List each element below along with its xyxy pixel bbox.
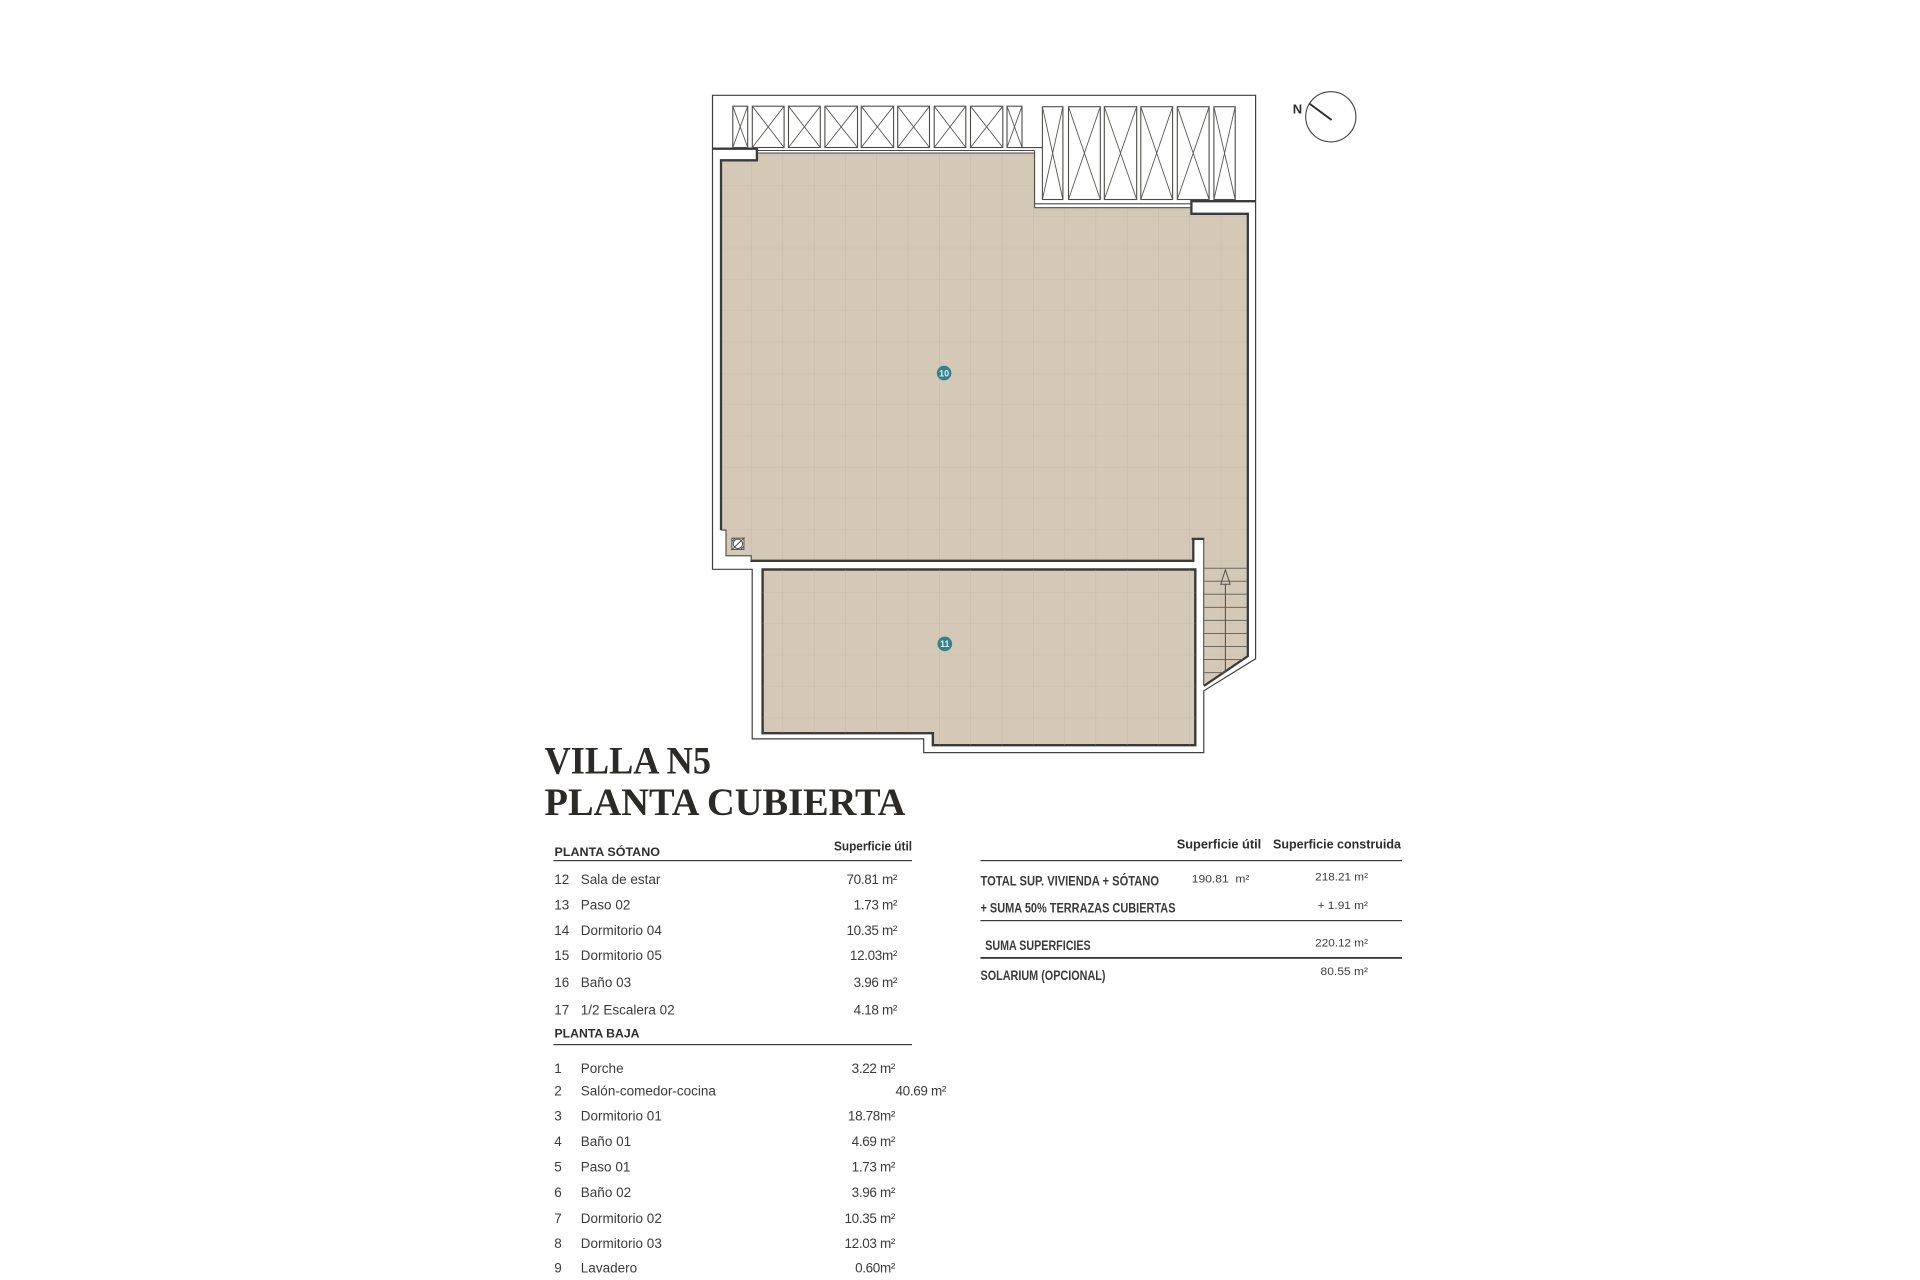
svg-text:12.03 m²: 12.03 m² (845, 1236, 896, 1251)
svg-text:11: 11 (940, 639, 950, 649)
svg-text:15: 15 (554, 948, 569, 963)
svg-text:+ SUMA 50% TERRAZAS CUBIERTAS: + SUMA 50% TERRAZAS CUBIERTAS (981, 901, 1176, 916)
svg-text:Dormitorio 04: Dormitorio 04 (581, 923, 663, 938)
svg-text:1.73 m²: 1.73 m² (852, 1159, 896, 1174)
svg-text:70.81 m²: 70.81 m² (847, 872, 898, 887)
svg-text:Paso 01: Paso 01 (581, 1159, 631, 1174)
svg-text:5: 5 (554, 1159, 562, 1174)
svg-text:SOLARIUM (OPCIONAL): SOLARIUM (OPCIONAL) (981, 968, 1106, 983)
svg-text:Sala de estar: Sala de estar (581, 872, 661, 887)
svg-text:14: 14 (554, 923, 570, 938)
svg-text:4: 4 (554, 1134, 562, 1149)
svg-text:218.21 m²: 218.21 m² (1315, 872, 1368, 884)
svg-text:Baño 02: Baño 02 (581, 1185, 631, 1200)
svg-text:1.73 m²: 1.73 m² (854, 897, 898, 912)
svg-text:+ 1.91 m²: + 1.91 m² (1318, 900, 1369, 912)
svg-text:VILLA N5: VILLA N5 (545, 739, 712, 782)
svg-text:6: 6 (554, 1185, 562, 1200)
svg-text:4.18 m²: 4.18 m² (854, 1003, 898, 1018)
svg-text:Porche: Porche (581, 1061, 624, 1076)
svg-text:9: 9 (554, 1260, 562, 1275)
svg-text:Dormitorio 02: Dormitorio 02 (581, 1211, 662, 1226)
svg-text:Dormitorio 03: Dormitorio 03 (581, 1236, 662, 1251)
svg-text:3.22 m²: 3.22 m² (852, 1061, 896, 1076)
svg-text:190.81 m²: 190.81 m² (1192, 874, 1250, 886)
svg-text:17: 17 (554, 1003, 569, 1018)
svg-text:13: 13 (554, 897, 569, 912)
svg-text:TOTAL SUP. VIVIENDA + SÓTANO: TOTAL SUP. VIVIENDA + SÓTANO (981, 874, 1160, 889)
svg-text:10.35 m²: 10.35 m² (845, 1211, 896, 1226)
svg-text:1: 1 (554, 1061, 562, 1076)
svg-text:40.69 m²: 40.69 m² (896, 1083, 947, 1098)
svg-text:Dormitorio 05: Dormitorio 05 (581, 948, 662, 963)
svg-text:SUMA SUPERFICIES: SUMA SUPERFICIES (985, 938, 1090, 953)
svg-text:2: 2 (554, 1083, 562, 1098)
svg-text:1/2 Escalera 02: 1/2 Escalera 02 (581, 1003, 675, 1018)
svg-text:80.55 m²: 80.55 m² (1321, 966, 1369, 978)
svg-text:7: 7 (554, 1211, 562, 1226)
svg-text:10: 10 (939, 368, 949, 378)
svg-text:Superficie útil: Superficie útil (834, 839, 912, 854)
svg-text:Baño 03: Baño 03 (581, 975, 631, 990)
svg-text:3.96 m²: 3.96 m² (854, 975, 898, 990)
svg-text:18.78m²: 18.78m² (848, 1109, 896, 1124)
svg-text:Dormitorio 01: Dormitorio 01 (581, 1109, 662, 1124)
svg-text:0.60m²: 0.60m² (855, 1260, 896, 1275)
svg-text:N: N (1293, 102, 1302, 117)
svg-text:Salón-comedor-cocina: Salón-comedor-cocina (581, 1083, 717, 1098)
svg-text:Baño 01: Baño 01 (581, 1134, 631, 1149)
svg-text:PLANTA BAJA: PLANTA BAJA (555, 1026, 640, 1040)
svg-text:16: 16 (554, 975, 569, 990)
svg-text:Superficie útil: Superficie útil (1177, 837, 1262, 852)
svg-text:12.03m²: 12.03m² (850, 948, 898, 963)
svg-text:PLANTA SÓTANO: PLANTA SÓTANO (555, 844, 661, 859)
svg-text:12: 12 (554, 872, 569, 887)
svg-text:4.69 m²: 4.69 m² (852, 1134, 896, 1149)
svg-text:Superficie construida: Superficie construida (1273, 837, 1402, 852)
svg-text:3.96 m²: 3.96 m² (852, 1185, 896, 1200)
svg-text:220.12 m²: 220.12 m² (1315, 937, 1368, 949)
svg-text:8: 8 (554, 1236, 562, 1251)
svg-text:10.35 m²: 10.35 m² (847, 923, 898, 938)
svg-text:3: 3 (554, 1109, 562, 1124)
svg-text:PLANTA CUBIERTA: PLANTA CUBIERTA (545, 781, 906, 824)
svg-text:Paso 02: Paso 02 (581, 897, 631, 912)
svg-text:Lavadero: Lavadero (581, 1260, 637, 1275)
